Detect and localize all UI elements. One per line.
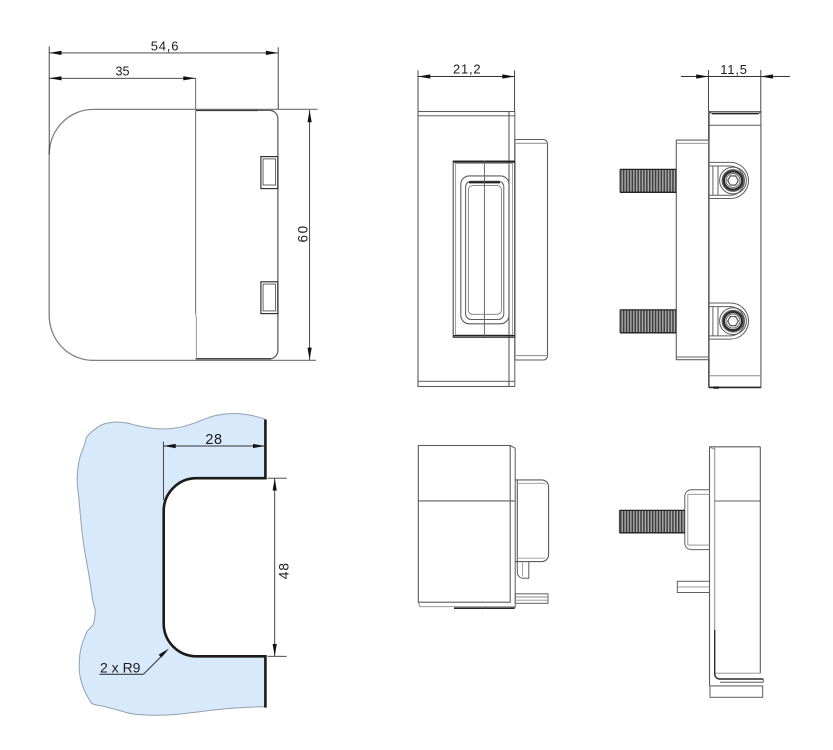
svg-text:21,2: 21,2: [453, 61, 482, 76]
svg-text:11,5: 11,5: [720, 62, 748, 77]
svg-text:2 x R9: 2 x R9: [100, 660, 141, 676]
svg-text:28: 28: [205, 432, 222, 448]
svg-text:54,6: 54,6: [151, 38, 180, 53]
svg-text:35: 35: [115, 65, 129, 79]
svg-text:60: 60: [295, 224, 310, 242]
svg-text:48: 48: [276, 562, 292, 579]
